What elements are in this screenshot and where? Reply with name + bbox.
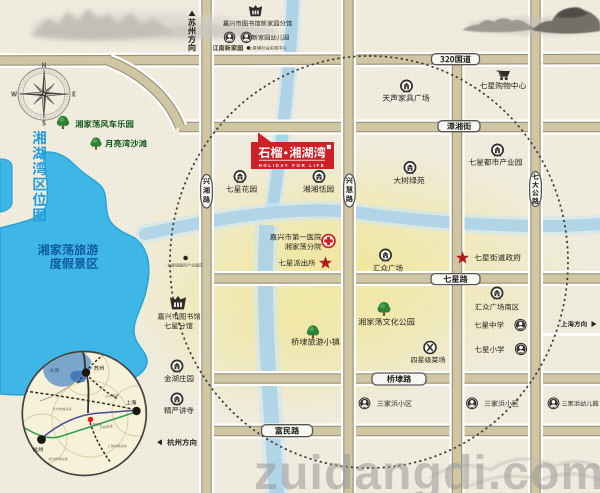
svg-text:zuidangdi.com: zuidangdi.com xyxy=(254,447,600,493)
svg-text:HOLIDAY FOR LIFE: HOLIDAY FOR LIFE xyxy=(259,163,326,168)
